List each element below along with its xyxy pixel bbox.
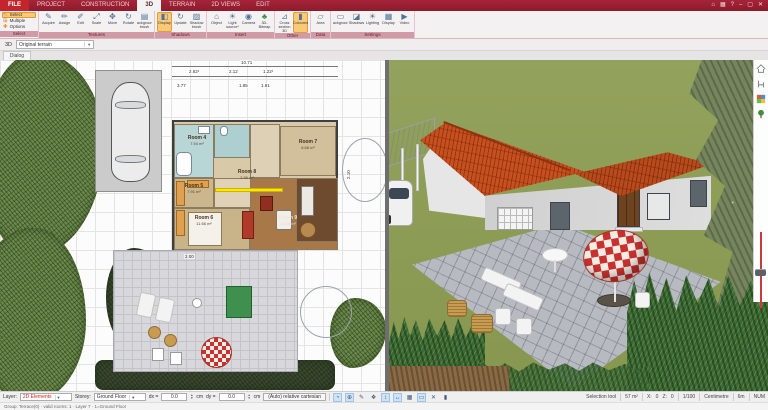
close-icon[interactable]: ✕ xyxy=(758,0,763,11)
coordinate-mode-button[interactable]: (Auto) relative cartesian xyxy=(263,393,326,401)
dx-input[interactable]: 0.0 xyxy=(161,393,187,401)
status-bar: Layer: 2D Elements ▼ Storey: Ground Floo… xyxy=(0,391,768,402)
scale-value[interactable]: 1/100 xyxy=(683,394,696,400)
minimize-icon[interactable]: – xyxy=(739,0,742,11)
layers-icon[interactable]: ❖ xyxy=(369,393,378,402)
z-value: 0 xyxy=(671,394,674,400)
ribbon-group-textures: ✎Acquire ✏Assign ✐Edit ⤢Scale ✥Move ↻Rot… xyxy=(39,11,155,38)
terrain-select[interactable]: Original terrain ▼ xyxy=(16,40,94,49)
dimension-label: 2.10 xyxy=(346,169,351,180)
dimension-label: 2.12 xyxy=(228,69,239,74)
layer-label: Layer: xyxy=(3,394,17,400)
coloured-icon: ▮ xyxy=(298,12,302,21)
wicker-chair-2d[interactable] xyxy=(148,326,161,339)
coloured-button[interactable]: ▮Coloured xyxy=(293,12,308,33)
render-3d-view[interactable] xyxy=(389,60,768,391)
chair-2d[interactable] xyxy=(152,348,164,361)
wardrobe-2d[interactable] xyxy=(176,210,185,236)
dy-unit: cm xyxy=(254,394,261,400)
divider xyxy=(733,393,734,401)
home-icon[interactable]: ⌂ xyxy=(711,0,715,11)
room-label: Room 917.88 m² xyxy=(268,216,308,226)
grid-icon[interactable]: ▦ xyxy=(405,393,414,402)
background-brush-button[interactable]: ▤Background brush xyxy=(137,12,152,32)
dialog-tab[interactable]: Dialog xyxy=(3,51,31,60)
storey-select[interactable]: Ground Floor ▼ xyxy=(94,393,146,401)
window-3d[interactable] xyxy=(550,202,570,230)
x-value: 0 xyxy=(656,394,659,400)
divider xyxy=(329,393,330,401)
chair-3d[interactable] xyxy=(495,308,511,325)
group-label-other: Other xyxy=(275,33,310,38)
materials-catalog-icon[interactable] xyxy=(756,94,766,104)
dimension-label: 1.22¹ xyxy=(262,69,274,74)
side-table-2d[interactable] xyxy=(192,298,202,308)
object-button[interactable]: ⌂Object xyxy=(209,12,224,32)
wicker-chair-2d[interactable] xyxy=(164,334,177,347)
history-icon[interactable]: ◔ xyxy=(333,393,342,402)
cross-section-icon: ⊿ xyxy=(281,12,288,21)
car-2d[interactable] xyxy=(111,82,150,182)
shadow-brush-icon: ▨ xyxy=(193,12,201,21)
group-label-select: Select xyxy=(0,31,38,37)
rotate-icon: ↻ xyxy=(125,12,132,21)
application-window: FILE PROJECT CONSTRUCTION 3D TERRAIN 2D … xyxy=(0,0,768,410)
assign-button[interactable]: ✏Assign xyxy=(57,12,72,32)
ribbon-group-other: ⊿Cross section 3D ▮Coloured Other xyxy=(275,11,311,38)
divider xyxy=(699,393,700,401)
view-mode-label: 3D xyxy=(5,42,12,48)
ribbon-3d: ↖Select ⊞Multiple ✚Options Select ✎Acqui… xyxy=(0,11,768,39)
selected-wall[interactable] xyxy=(215,188,283,192)
plus-icon: ✚ xyxy=(3,24,8,30)
close-tool-icon[interactable]: ✕ xyxy=(429,393,438,402)
window-3d[interactable] xyxy=(690,180,707,207)
sink-2d[interactable] xyxy=(198,126,210,134)
resize-icon: ⤢ xyxy=(93,12,99,21)
dy-stepper[interactable]: ▲▼ xyxy=(248,394,251,400)
room-label: Room 57.91 m² xyxy=(176,184,212,194)
shadows-settings-button[interactable]: ◪Shadows xyxy=(349,12,364,32)
chevron-down-icon: ▼ xyxy=(84,42,91,47)
lighting-button[interactable]: ☀Lighting xyxy=(365,12,380,32)
garden-table-set-2d[interactable] xyxy=(226,286,252,318)
group-label-shadows: Shadows xyxy=(155,32,206,38)
dx-label: dx = xyxy=(149,394,159,400)
dx-stepper[interactable]: ▲▼ xyxy=(190,394,193,400)
x-label: X: xyxy=(647,394,652,400)
plan-2d-view[interactable]: 10.71 2.62¹ 2.12 1.22¹ 3.77 1.85 1.91 2.… xyxy=(0,60,385,391)
layer-select[interactable]: 2D Elements ▼ xyxy=(20,393,72,401)
car-3d[interactable] xyxy=(389,180,413,226)
ribbon-group-shadows: ◧Display ↻Update ▨Shadow brush Shadows xyxy=(155,11,207,38)
toilet-2d[interactable] xyxy=(220,126,228,136)
dialog-tab-row: Dialog xyxy=(0,51,768,60)
french-door-3d[interactable] xyxy=(497,207,533,230)
ribbon-tab-bar: FILE PROJECT CONSTRUCTION 3D TERRAIN 2D … xyxy=(0,0,768,11)
area-icon: ▱ xyxy=(317,12,323,21)
group-label-data: Data xyxy=(311,32,330,38)
zoom-slider-handle[interactable] xyxy=(755,269,766,276)
object-icon: ⌂ xyxy=(214,12,219,21)
edit-button[interactable]: ✐Edit xyxy=(73,12,88,32)
status-right: Selection tool 57 m² X: 0 Z: 0 1/100 Cen… xyxy=(586,393,765,401)
wicker-stool-3d[interactable] xyxy=(447,300,467,317)
light-source-button[interactable]: ☀Light source* xyxy=(225,12,240,32)
background-icon: ▭ xyxy=(337,12,345,21)
chair-3d[interactable] xyxy=(516,318,532,335)
divider xyxy=(620,393,621,401)
area-button[interactable]: ▱Area xyxy=(313,12,328,32)
car-rear-window xyxy=(115,155,146,163)
room-label: Room 611.66 m² xyxy=(186,216,222,226)
tab-2d-views[interactable]: 2D VIEWS xyxy=(203,0,248,11)
brush-icon: ✏ xyxy=(61,12,68,21)
display-icon: ▦ xyxy=(385,12,393,21)
background-button[interactable]: ▭Background xyxy=(333,12,348,32)
dimension-label: 1.91 xyxy=(260,83,271,88)
dimension-line xyxy=(172,76,338,77)
target-icon[interactable]: ⊕ xyxy=(345,393,354,402)
room-label: Room 78.68 m² xyxy=(290,140,326,150)
shadows-icon: ◪ xyxy=(353,12,361,21)
cross-section-button[interactable]: ⊿Cross section 3D xyxy=(277,12,292,33)
room-label: Room 47.94 m² xyxy=(180,136,214,146)
grid-size-value[interactable]: 6m xyxy=(738,394,745,400)
acquire-button[interactable]: ✎Acquire xyxy=(41,12,56,32)
refresh-icon: ↻ xyxy=(177,12,184,21)
tab-terrain[interactable]: TERRAIN xyxy=(161,0,203,11)
bathtub-2d[interactable] xyxy=(176,152,192,176)
tree-outline-2d[interactable] xyxy=(300,286,352,338)
z-label: Z: xyxy=(662,394,666,400)
pencil-icon: ✐ xyxy=(77,12,84,21)
chevron-down-icon: ▼ xyxy=(129,395,135,400)
room-label: Room 82.96 m² xyxy=(228,170,266,180)
carport-post-3d xyxy=(416,144,419,191)
pan-horizontal-icon[interactable]: ↔ xyxy=(393,393,402,402)
car-glass-3d xyxy=(389,188,409,199)
camera-icon: ◉ xyxy=(245,12,252,21)
pan-vertical-icon[interactable]: ↕ xyxy=(381,393,390,402)
divider xyxy=(642,393,643,401)
dimension-label: 2.00 xyxy=(184,254,195,259)
camera-button[interactable]: ◉Camera xyxy=(241,12,256,32)
pipette-icon: ✎ xyxy=(45,12,52,21)
tree-2d[interactable] xyxy=(0,60,104,257)
dimension-line xyxy=(172,66,338,67)
kitchen-island-2d[interactable] xyxy=(260,196,273,211)
active-tool-label: Selection tool xyxy=(586,394,616,400)
car-wheel-3d xyxy=(389,215,391,224)
background-brush-icon: ▤ xyxy=(141,12,149,21)
options-button[interactable]: ✚Options xyxy=(2,24,36,30)
dimension-label: 1.85 xyxy=(238,83,249,88)
rotate-button[interactable]: ↻Rotate xyxy=(121,12,136,32)
group-label-textures: Textures xyxy=(39,32,154,38)
dx-unit: cm xyxy=(196,394,203,400)
workspace: 10.71 2.62¹ 2.12 1.22¹ 3.77 1.85 1.91 2.… xyxy=(0,60,768,391)
furniture-catalog-icon[interactable] xyxy=(756,79,766,89)
ribbon-group-select: ↖Select ⊞Multiple ✚Options Select xyxy=(0,11,39,38)
frame-icon[interactable]: ▭ xyxy=(417,393,426,402)
group-label-settings: Settings xyxy=(331,32,414,38)
video-icon: ▶ xyxy=(401,12,407,21)
dimension-label: 10.71 xyxy=(240,60,253,65)
shadow-display-button[interactable]: ◧Display xyxy=(157,12,172,32)
wicker-stool-3d[interactable] xyxy=(471,314,493,333)
numlock-indicator: NUM xyxy=(754,394,765,400)
dimension-label: 3.77 xyxy=(176,83,187,88)
measure-value: 57 m² xyxy=(625,394,638,400)
edit-icon[interactable]: ✎ xyxy=(357,393,366,402)
tab-edit[interactable]: EDIT xyxy=(248,0,278,11)
tab-3d[interactable]: 3D xyxy=(137,0,161,11)
unit-value[interactable]: Centimetre xyxy=(704,394,728,400)
car-windshield xyxy=(115,101,146,109)
tree-icon: ♣ xyxy=(262,12,267,21)
ribbon-group-insert: ⌂Object ☀Light source* ◉Camera ♣3D-Bitma… xyxy=(207,11,275,38)
move-icon: ✥ xyxy=(109,12,116,21)
tab-file[interactable]: FILE xyxy=(0,0,29,11)
window-3d[interactable] xyxy=(647,193,670,220)
appliance-2d[interactable] xyxy=(301,186,314,216)
dy-label: dy = xyxy=(206,394,216,400)
move-button[interactable]: ✥Move xyxy=(105,12,120,32)
storey-label: Storey: xyxy=(75,394,91,400)
tree-2d[interactable] xyxy=(0,228,86,391)
tab-project[interactable]: PROJECT xyxy=(29,0,73,11)
chair-2d[interactable] xyxy=(170,352,182,365)
bitmap-3d-button[interactable]: ♣3D-Bitmap xyxy=(257,12,272,32)
tab-construction[interactable]: CONSTRUCTION xyxy=(73,0,137,11)
dirt-patch-3d xyxy=(389,366,509,391)
ribbon-group-data: ▱Area Data xyxy=(311,11,331,38)
layout-icon[interactable]: ▦ xyxy=(720,0,726,11)
cursor-bar-icon[interactable]: ▮ xyxy=(441,393,450,402)
divider xyxy=(678,393,679,401)
table-leg-3d xyxy=(554,260,556,272)
lightbulb-icon: ☀ xyxy=(229,12,236,21)
help-icon[interactable]: ? xyxy=(731,0,734,11)
sofa-2d[interactable] xyxy=(242,211,254,239)
group-label-insert: Insert xyxy=(207,32,274,38)
display-settings-button[interactable]: ▦Display xyxy=(381,12,396,32)
chevron-down-icon: ▼ xyxy=(55,395,61,400)
shadow-brush-button[interactable]: ▨Shadow brush xyxy=(189,12,204,32)
video-button[interactable]: ▶Video xyxy=(397,12,412,32)
lighting-icon: ☀ xyxy=(369,12,376,21)
window-controls: ⌂ ▦ ? – ▢ ✕ xyxy=(711,0,768,11)
scale-button[interactable]: ⤢Scale xyxy=(89,12,104,32)
parasol-2d[interactable] xyxy=(201,337,232,368)
view-toolbar: 3D Original terrain ▼ xyxy=(0,39,768,51)
chair-3d[interactable] xyxy=(635,292,650,308)
shadow-display-icon: ◧ xyxy=(161,12,169,21)
plants-catalog-icon[interactable] xyxy=(756,109,766,119)
maximize-icon[interactable]: ▢ xyxy=(747,0,753,11)
ribbon-group-settings: ▭Background ◪Shadows ☀Lighting ▦Display … xyxy=(331,11,415,38)
shadow-update-button[interactable]: ↻Update xyxy=(173,12,188,32)
divider xyxy=(749,393,750,401)
dimension-label: 2.62¹ xyxy=(188,69,200,74)
room-7-floor[interactable] xyxy=(280,126,336,176)
roof-catalog-icon[interactable] xyxy=(756,64,766,74)
selection-info-line: Group: Terrace(0) · valid rooms: 1 · Lay… xyxy=(0,402,768,410)
dy-input[interactable]: 0.0 xyxy=(219,393,245,401)
